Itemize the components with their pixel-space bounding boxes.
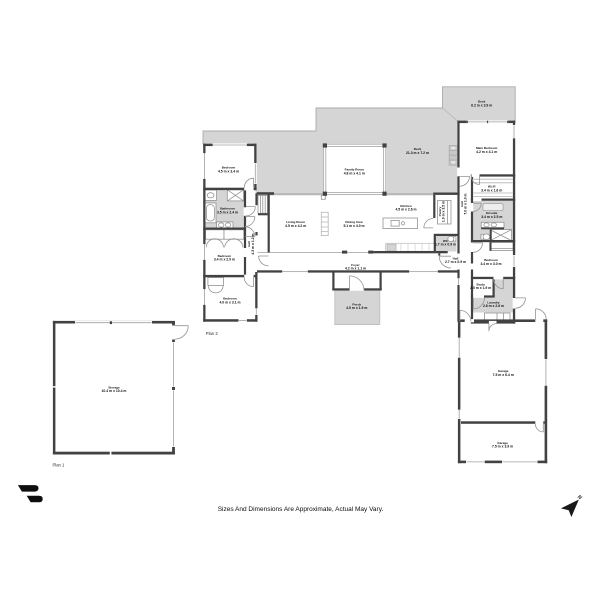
svg-text:Plan 2: Plan 2 [206,331,219,336]
svg-text:4.5 m x 2.6 m: 4.5 m x 2.6 m [395,208,416,212]
svg-text:2.7 m x 0.9 m: 2.7 m x 0.9 m [445,260,466,264]
svg-text:4.5 m x 3.4 m: 4.5 m x 3.4 m [218,169,239,173]
svg-text:4.8 m x 4.1 m: 4.8 m x 4.1 m [344,171,365,175]
svg-text:4.0 m x 3.1 m: 4.0 m x 3.1 m [219,300,240,304]
svg-text:1.7 m x 0.9 m: 1.7 m x 0.9 m [435,243,456,247]
svg-text:4.3 m x 1.2 m: 4.3 m x 1.2 m [251,233,255,254]
svg-text:1.9 m x 3.5 m: 1.9 m x 3.5 m [442,201,446,222]
svg-text:4.5 m x 1.9 m: 4.5 m x 1.9 m [346,306,367,310]
svg-text:10.4 m x 10.4 m: 10.4 m x 10.4 m [102,389,127,393]
svg-text:3.4 m x 1.6 m: 3.4 m x 1.6 m [481,188,502,192]
svg-text:6.2 m x 3.9 m: 6.2 m x 3.9 m [471,103,492,107]
svg-text:Sizes And Dimensions Are Appro: Sizes And Dimensions Are Approximate, Ac… [218,506,384,513]
svg-text:3.4 m x 3.0 m: 3.4 m x 3.0 m [480,262,501,266]
svg-text:7.5 m x 3.9 m: 7.5 m x 3.9 m [492,445,513,449]
svg-text:2.8 m x 2.6 m: 2.8 m x 2.6 m [483,304,504,308]
svg-text:21.3 m x 7.2 m: 21.3 m x 7.2 m [406,151,429,155]
svg-text:4.5 m x 4.2 m: 4.5 m x 4.2 m [285,224,306,228]
svg-text:Plan 1: Plan 1 [53,463,66,468]
svg-text:5.1 m x 4.0 m: 5.1 m x 4.0 m [343,224,364,228]
svg-text:3.4 m x 2.5 m: 3.4 m x 2.5 m [481,215,502,219]
svg-text:3.4 m x 2.9 m: 3.4 m x 2.9 m [214,258,235,262]
svg-text:2.0 m x 1.9 m: 2.0 m x 1.9 m [470,286,491,290]
svg-text:4.2 m x 1.1 m: 4.2 m x 1.1 m [345,267,366,271]
svg-text:7.5 m x 6.4 m: 7.5 m x 6.4 m [493,373,514,377]
svg-text:4.2 m x 4.1 m: 4.2 m x 4.1 m [476,150,497,154]
svg-text:7.0 m x 1.0 m: 7.0 m x 1.0 m [464,193,468,214]
svg-text:3.5 m x 2.4 m: 3.5 m x 2.4 m [217,210,238,214]
